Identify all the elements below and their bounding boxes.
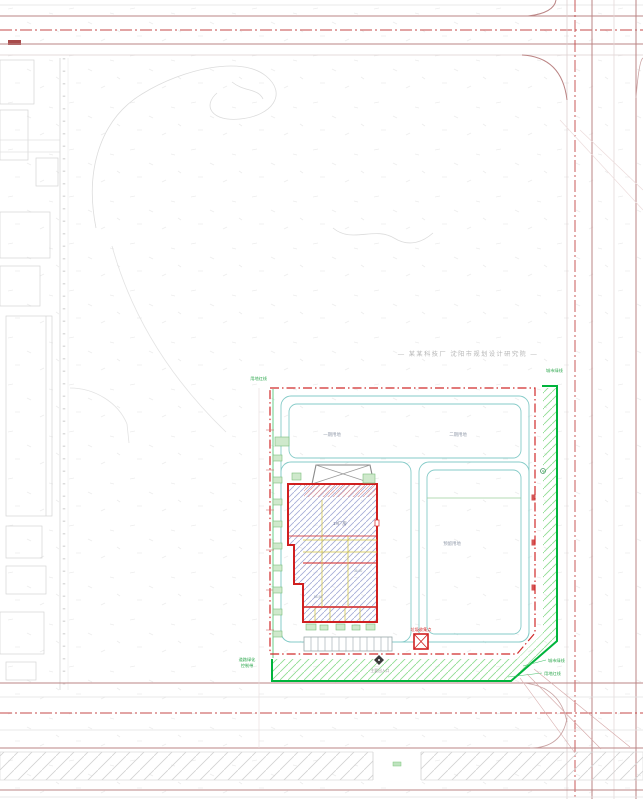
leader-label-red: 用地红线 <box>544 670 562 677</box>
road-median-hatch <box>0 752 643 780</box>
red-line-label: 用地红线 <box>250 375 268 382</box>
building-name-label: 1#厂房 <box>333 520 347 527</box>
leader-label-green: 城市绿线 <box>548 657 566 664</box>
green-line-label: 城市绿线 <box>546 367 564 374</box>
building-dimension: 36.00 <box>354 569 363 573</box>
parcel-label-a: 一期用地 <box>323 431 341 438</box>
site-plan-svg: 1#厂房 36.00 58.50 <box>0 0 643 799</box>
waste-label: 垃圾收集点 <box>411 626 432 633</box>
median-planting <box>393 762 401 766</box>
building-door-mark <box>375 520 379 526</box>
entrance-label: 主要出入口 <box>371 668 390 673</box>
parcel-label-b: 二期用地 <box>449 431 467 438</box>
title-annotation: — 某某科技厂 沈阳市规划设计研究院 — <box>398 350 538 358</box>
green-belt-label-line1: 道路绿化 <box>239 656 257 663</box>
parking-row <box>304 637 392 651</box>
green-belt-label-line2: 控制带 <box>241 662 254 669</box>
building-red-hatch-strip <box>304 485 376 497</box>
waste-collection-structure: 垃圾收集点 <box>411 626 432 649</box>
site-plan-canvas: 1#厂房 36.00 58.50 <box>0 0 643 799</box>
building-dimension: 58.50 <box>314 595 323 599</box>
parcel-label-c: 预留用地 <box>443 540 461 547</box>
